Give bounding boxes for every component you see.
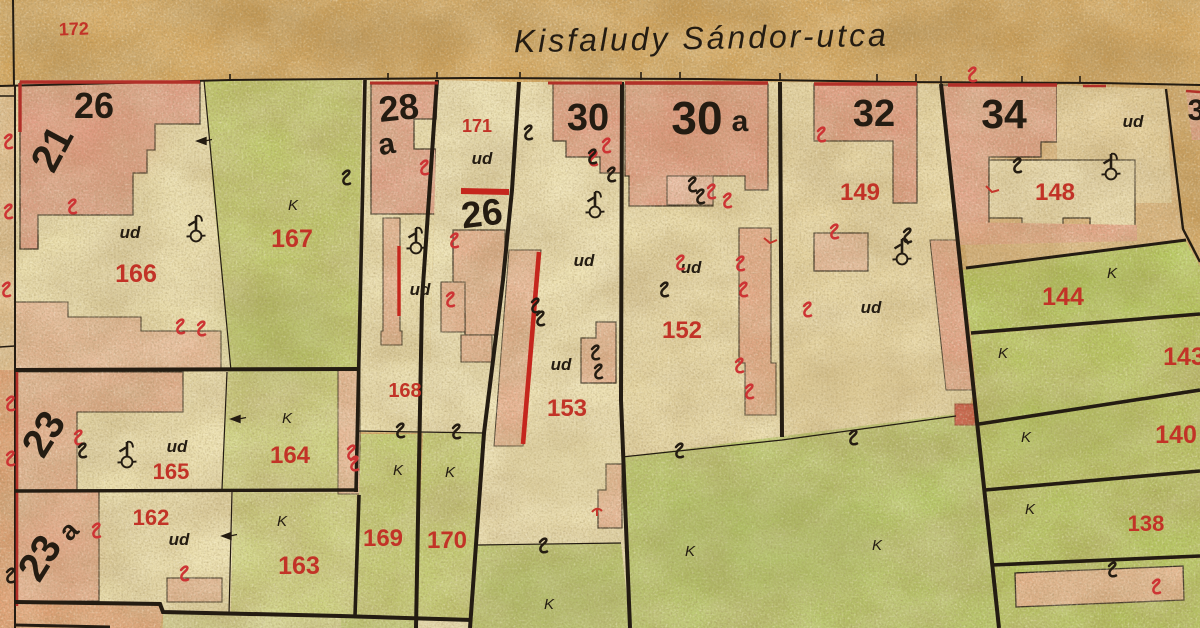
svg-text:3: 3 [1188, 94, 1200, 127]
svg-text:K: K [282, 410, 293, 427]
svg-text:K: K [685, 543, 696, 560]
svg-text:143: 143 [1163, 343, 1200, 371]
svg-text:ud: ud [167, 437, 188, 456]
svg-text:149: 149 [840, 179, 880, 206]
svg-text:144: 144 [1042, 283, 1084, 311]
svg-text:166: 166 [115, 260, 157, 288]
svg-text:30: 30 [567, 97, 609, 139]
svg-text:ud: ud [574, 251, 595, 270]
svg-text:K: K [1025, 501, 1036, 518]
svg-text:138: 138 [1128, 511, 1165, 536]
svg-text:ud: ud [551, 355, 572, 374]
svg-text:ud: ud [1123, 112, 1144, 131]
svg-text:ud: ud [861, 298, 882, 317]
svg-text:32: 32 [853, 93, 895, 135]
svg-text:170: 170 [427, 527, 467, 554]
svg-text:153: 153 [547, 395, 587, 422]
svg-text:171: 171 [462, 116, 492, 136]
svg-text:164: 164 [270, 442, 311, 469]
svg-text:28: 28 [377, 85, 421, 130]
svg-text:a: a [732, 105, 749, 138]
svg-text:ud: ud [410, 280, 431, 299]
svg-text:162: 162 [133, 505, 170, 530]
svg-text:30: 30 [671, 92, 722, 144]
svg-text:K: K [998, 345, 1009, 362]
svg-text:K: K [1107, 265, 1118, 282]
svg-text:ud: ud [472, 149, 493, 168]
svg-text:K: K [288, 197, 299, 214]
svg-text:K: K [393, 462, 404, 479]
svg-text:140: 140 [1155, 421, 1197, 449]
svg-text:K: K [872, 537, 883, 554]
svg-text:152: 152 [662, 317, 702, 344]
svg-text:26: 26 [74, 85, 114, 126]
svg-text:165: 165 [153, 459, 190, 484]
svg-text:168: 168 [388, 380, 421, 402]
svg-text:169: 169 [363, 525, 403, 552]
svg-text:ud: ud [169, 530, 190, 549]
svg-text:26: 26 [459, 191, 505, 237]
svg-text:K: K [544, 596, 555, 613]
svg-text:ud: ud [120, 223, 141, 242]
svg-text:148: 148 [1035, 179, 1075, 206]
svg-text:K: K [277, 513, 288, 530]
svg-text:Kisfaludy Sándor-utca: Kisfaludy Sándor-utca [514, 17, 887, 59]
svg-text:167: 167 [271, 225, 313, 253]
svg-text:K: K [445, 464, 456, 481]
svg-text:172: 172 [58, 18, 89, 39]
svg-text:K: K [1021, 429, 1032, 446]
svg-text:163: 163 [278, 552, 320, 580]
svg-text:34: 34 [981, 91, 1027, 137]
